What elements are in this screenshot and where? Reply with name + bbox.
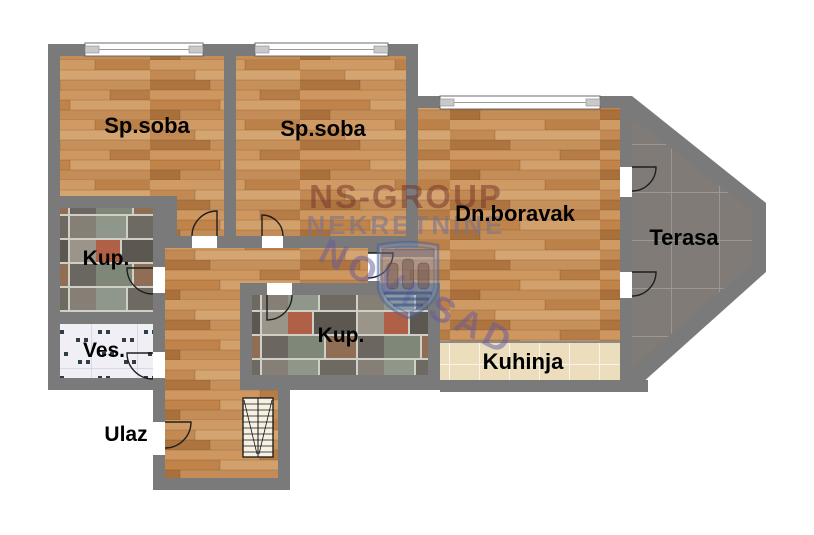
wall-kitchen-bottom bbox=[440, 380, 648, 392]
door-opening-laundry bbox=[153, 352, 165, 378]
door-opening-terrace1 bbox=[620, 167, 632, 197]
door-opening-bath-main bbox=[267, 283, 292, 295]
label-bedroom2: Sp.soba bbox=[280, 116, 366, 141]
wall-entrance-right bbox=[278, 390, 290, 490]
label-bath-left: Kup. bbox=[83, 247, 130, 270]
door-opening-bedroom1 bbox=[192, 236, 217, 248]
window-bedroom1 bbox=[85, 43, 203, 56]
wall-bath-main-bottom bbox=[240, 375, 440, 390]
window-bedroom2 bbox=[255, 43, 388, 56]
wall-bath-left-top bbox=[48, 196, 177, 208]
label-terrace: Terasa bbox=[649, 225, 719, 250]
label-bath-main: Kup. bbox=[318, 324, 365, 347]
door-opening-bath-left bbox=[153, 267, 165, 293]
wall-bedroom-divider bbox=[224, 56, 236, 248]
label-laundry: Ves. bbox=[83, 339, 125, 362]
door-opening-bedroom2 bbox=[262, 236, 283, 248]
wall-entrance-bottom bbox=[153, 478, 290, 490]
floor-plan-canvas: NS-GROUP NEKRETNINE NOVI SAD Sp.soba Sp.… bbox=[0, 0, 814, 535]
wall-living-right bbox=[620, 96, 632, 392]
floor-plan: NS-GROUP NEKRETNINE NOVI SAD Sp.soba Sp.… bbox=[0, 0, 814, 535]
wall-bedroom1-ext bbox=[165, 196, 177, 248]
label-entrance: Ulaz bbox=[104, 423, 147, 446]
wardrobe-symbol bbox=[243, 398, 273, 457]
door-opening-entrance bbox=[153, 422, 165, 455]
wall-bath-laundry-divider bbox=[48, 312, 165, 324]
label-kitchen: Kuhinja bbox=[483, 349, 564, 374]
wall-laundry-bottom bbox=[48, 378, 165, 390]
label-living: Dn.boravak bbox=[455, 201, 576, 226]
door-opening-terrace2 bbox=[620, 272, 632, 298]
window-living bbox=[440, 96, 600, 109]
wall-left-outer bbox=[48, 44, 60, 390]
label-bedroom1: Sp.soba bbox=[104, 113, 190, 138]
